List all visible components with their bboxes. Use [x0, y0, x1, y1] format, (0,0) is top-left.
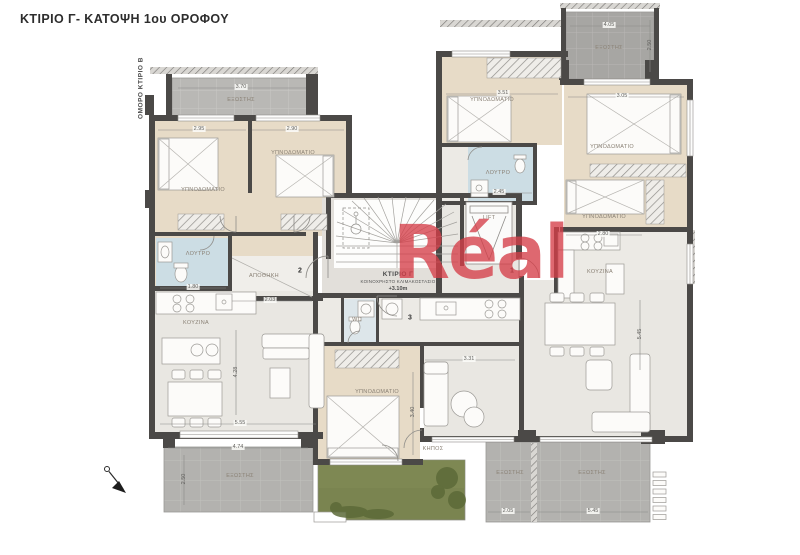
room-label: ΚΗΠΟΣ: [423, 446, 444, 452]
room-label: ΕΞΩΣΤΗΣ: [226, 473, 254, 479]
dimension-label: 2.05: [502, 508, 515, 514]
dimension-label: 4.74: [232, 444, 245, 450]
dimension-label: 4.28: [233, 366, 239, 379]
dimension-label: 5.45: [637, 328, 643, 341]
room-label: ΥΠΝΟΔΩΜΑΤΙΟ: [582, 214, 626, 220]
dimension-label: 2.80: [597, 231, 610, 237]
floor-plan-page: ΚΤΙΡΙΟ Γ- ΚΑΤΟΨΗ 1ου ΟΡΟΦΟΥ ΟΜΟΡΟ ΚΤΙΡΙΟ…: [0, 0, 800, 555]
dimension-label: 3.51: [497, 90, 510, 96]
room-label: LIFT: [483, 215, 496, 221]
dimension-label: 2.03: [264, 297, 277, 303]
room-label: ΥΠΝΟΔΩΜΑΤΙΟ: [470, 97, 514, 103]
dimension-label: 2.95: [193, 126, 206, 132]
room-label: ΕΞΩΣΤΗΣ: [227, 97, 255, 103]
unit-number: 1: [510, 268, 514, 275]
room-label: ΕΞΩΣΤΗΣ: [578, 470, 606, 476]
labels-layer: ΕΞΩΣΤΗΣΥΠΝΟΔΩΜΑΤΙΟΥΠΝΟΔΩΜΑΤΙΟΛΟΥΤΡΟΑΠΟΘΗ…: [0, 0, 800, 555]
room-label: ΑΠΟΘΗΚΗ: [249, 273, 279, 279]
dimension-label: 2.90: [286, 126, 299, 132]
dimension-label: 3.70: [235, 84, 248, 90]
room-label: ΛΟΥΤΡΟ: [486, 170, 510, 176]
room-label: ΕΞΩΣΤΗΣ: [496, 470, 524, 476]
room-label: ΥΠΝΟΔΩΜΑΤΙΟ: [181, 187, 225, 193]
room-label: ΕΞΩΣΤΗΣ: [595, 45, 623, 51]
dimension-label: 2.50: [647, 39, 653, 52]
room-label: ΥΠΝΟΔΩΜΑΤΙΟ: [271, 150, 315, 156]
unit-number: 2: [298, 268, 302, 275]
dimension-label: 5.55: [234, 420, 247, 426]
dimension-label: 4.05: [603, 22, 616, 28]
dimension-label: 1.80: [187, 284, 200, 290]
dimension-label: 3.40: [410, 406, 416, 419]
unit-number: 3: [408, 315, 412, 322]
room-label: WC: [352, 317, 362, 323]
dimension-label: 3.31: [463, 356, 476, 362]
dimension-label: 2.50: [181, 473, 187, 486]
dimension-label: 3.05: [616, 93, 629, 99]
room-label: ΚΟΥΖΙΝΑ: [587, 269, 613, 275]
room-label: ΛΟΥΤΡΟ: [186, 251, 210, 257]
room-label: ΥΠΝΟΔΩΜΑΤΙΟ: [355, 389, 399, 395]
dimension-label: 2.45: [493, 189, 506, 195]
room-label: ΥΠΝΟΔΩΜΑΤΙΟ: [590, 144, 634, 150]
room-label: ΚΟΥΖΙΝΑ: [183, 320, 209, 326]
dimension-label: 5.45: [587, 508, 600, 514]
